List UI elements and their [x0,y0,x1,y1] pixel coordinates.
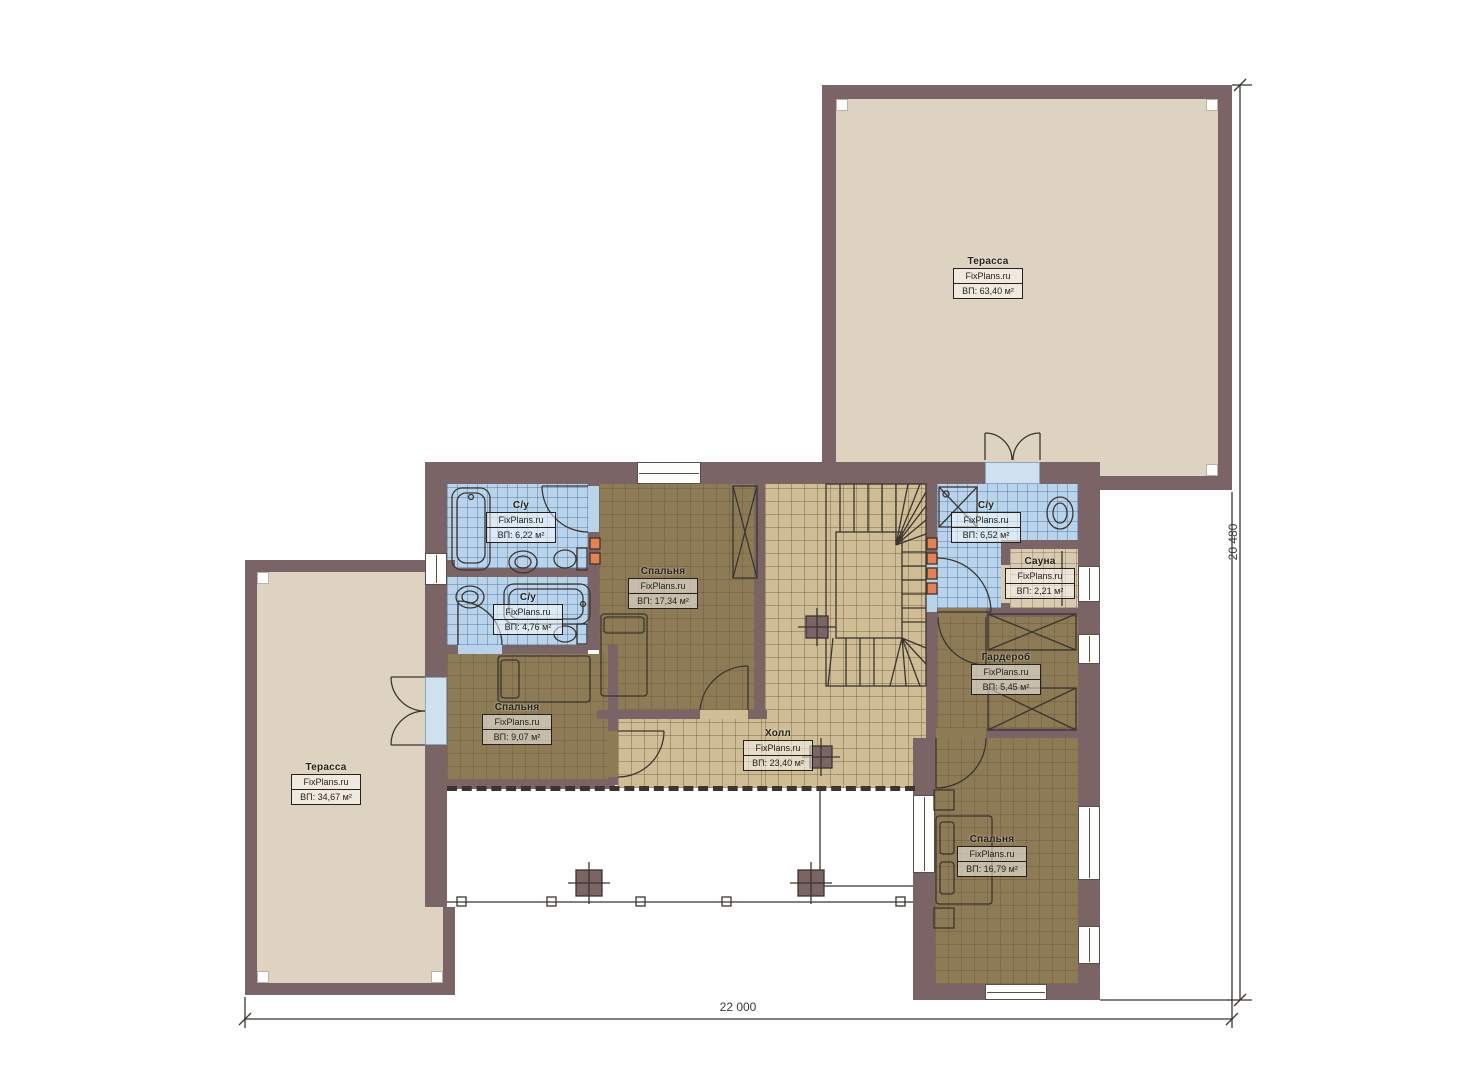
room-area: ВП: 2,21 м² [1006,584,1074,598]
window [1078,806,1100,880]
watermark: FixPlans.ru [958,847,1026,862]
room-area: ВП: 5,45 м² [972,680,1040,694]
floor-terrace-top [836,99,1218,476]
floor-void [447,788,915,902]
watermark: FixPlans.ru [744,741,812,756]
wall-segment [1078,462,1100,1000]
pier-base [431,971,443,983]
watermark: FixPlans.ru [483,715,551,730]
room-name: С/у [513,500,529,511]
railing [447,786,915,791]
terrace-door-threshold [985,462,1040,484]
room-area: ВП: 6,22 м² [487,528,555,542]
room-name: Спальня [970,834,1015,845]
door-opening [938,608,986,617]
watermark: FixPlans.ru [487,513,555,528]
terrace-door-threshold [425,677,447,745]
room-info-box: FixPlans.ru ВП: 6,52 м² [951,512,1021,543]
window [1078,926,1100,964]
window [637,462,701,484]
door-opening [936,728,986,738]
room-label-bedroom-left: Спальня FixPlans.ru ВП: 9,07 м² [482,702,552,745]
door-opening [926,558,937,612]
floor-plan-canvas: Терасса FixPlans.ru ВП: 63,40 м² Терасса… [0,0,1473,1080]
watermark: FixPlans.ru [952,513,1020,528]
room-info-box: FixPlans.ru ВП: 17,34 м² [628,578,698,609]
dimension-width-label: 22 000 [688,1000,788,1014]
room-area: ВП: 17,34 м² [629,594,697,608]
room-area: ВП: 9,07 м² [483,730,551,744]
room-area: ВП: 23,40 м² [744,756,812,770]
watermark: FixPlans.ru [954,269,1022,284]
room-label-bathroom-top: С/у FixPlans.ru ВП: 6,22 м² [486,500,556,543]
window [913,795,935,873]
wall-segment [443,907,455,995]
watermark: FixPlans.ru [292,775,360,790]
room-label-wardrobe: Гардероб FixPlans.ru ВП: 5,45 м² [971,652,1041,695]
room-area: ВП: 4,76 м² [494,620,562,634]
room-info-box: FixPlans.ru ВП: 4,76 м² [493,604,563,635]
window [425,553,447,585]
wall-segment [245,560,455,572]
room-area: ВП: 34,67 м² [292,790,360,804]
room-info-box: FixPlans.ru ВП: 9,07 м² [482,714,552,745]
watermark: FixPlans.ru [972,665,1040,680]
pier-base [1206,464,1218,476]
wall-segment [822,85,1232,99]
pier-base [836,99,848,111]
door-opening [588,486,599,532]
room-label-bedroom-bottom: Спальня FixPlans.ru ВП: 16,79 м² [957,834,1027,877]
room-area: ВП: 63,40 м² [954,284,1022,298]
room-name: Спальня [641,566,686,577]
pier-base [257,572,269,584]
pier-base [1206,99,1218,111]
wall-segment [245,560,257,995]
room-info-box: FixPlans.ru ВП: 63,40 м² [953,268,1023,299]
room-info-box: FixPlans.ru ВП: 2,21 м² [1005,568,1075,599]
room-area: ВП: 6,52 м² [952,528,1020,542]
room-name: Сауна [1024,556,1055,567]
room-info-box: FixPlans.ru ВП: 5,45 м² [971,664,1041,695]
dimension-height-label: 20 480 [1226,502,1240,582]
wall-segment [1085,476,1232,490]
room-label-bathroom-right: С/у FixPlans.ru ВП: 6,52 м² [951,500,1021,543]
room-name: С/у [978,500,994,511]
room-area: ВП: 16,79 м² [958,862,1026,876]
room-name: Холл [765,728,791,739]
door-opening [608,731,618,777]
window [1078,634,1100,664]
door-opening [700,710,748,719]
room-label-terrace-top: Терасса FixPlans.ru ВП: 63,40 м² [953,256,1023,299]
room-label-bedroom-top: Спальня FixPlans.ru ВП: 17,34 м² [628,566,698,609]
wall-segment [822,85,836,476]
room-name: Терасса [305,762,346,773]
room-info-box: FixPlans.ru ВП: 23,40 м² [743,740,813,771]
pier-base [257,971,269,983]
wall-segment [754,484,765,714]
watermark: FixPlans.ru [494,605,562,620]
room-name: Гардероб [982,652,1031,663]
watermark: FixPlans.ru [1006,569,1074,584]
watermark: FixPlans.ru [629,579,697,594]
room-label-bathroom-mid: С/у FixPlans.ru ВП: 4,76 м² [493,592,563,635]
floor-bathroom-right-side [937,542,1001,608]
window [985,984,1047,1000]
room-label-terrace-left: Терасса FixPlans.ru ВП: 34,67 м² [291,762,361,805]
room-info-box: FixPlans.ru ВП: 16,79 м² [957,846,1027,877]
room-name: С/у [520,592,536,603]
door-opening [458,645,502,654]
room-info-box: FixPlans.ru ВП: 6,22 м² [486,512,556,543]
room-label-sauna: Сауна FixPlans.ru ВП: 2,21 м² [1005,556,1075,599]
wall-segment [245,983,455,995]
window [1078,566,1100,602]
room-info-box: FixPlans.ru ВП: 34,67 м² [291,774,361,805]
wall-segment [447,568,588,577]
wall-segment [1218,85,1232,490]
room-name: Спальня [495,702,540,713]
room-label-hall: Холл FixPlans.ru ВП: 23,40 м² [743,728,813,771]
room-name: Терасса [967,256,1008,267]
